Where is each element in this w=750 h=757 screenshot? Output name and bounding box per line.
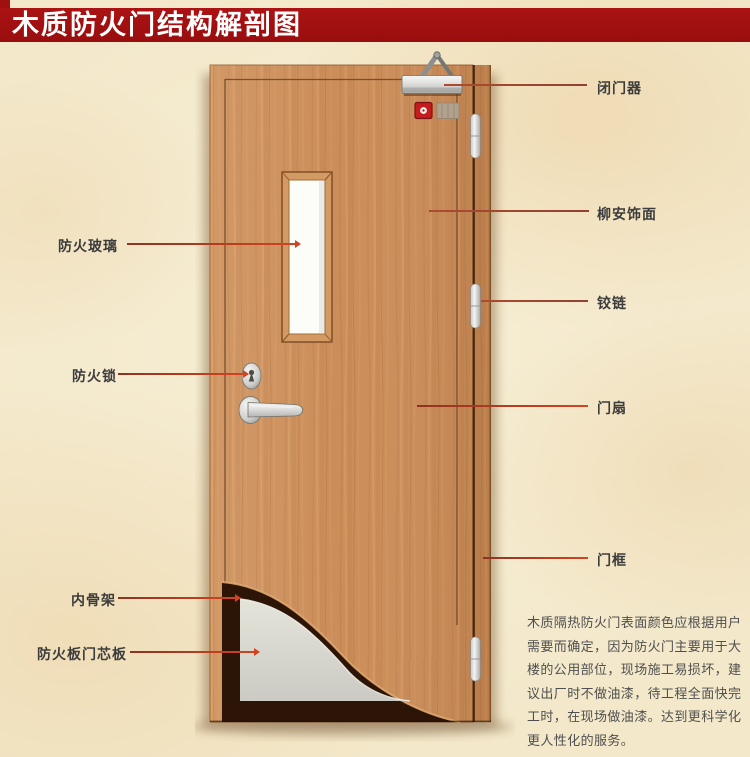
strike-plate (437, 103, 459, 119)
leader-fire-glass (127, 243, 296, 245)
door-gap (473, 65, 475, 722)
hinge-bottom (471, 637, 481, 681)
label-fire-board-core: 防火板门芯板 (37, 644, 127, 664)
door-frame-strip (474, 65, 492, 722)
description-line: 需要而确定，因为防火门主要用于大 (527, 636, 739, 660)
label-hinge: 铰链 (597, 293, 627, 313)
label-door-frame: 门框 (597, 550, 627, 570)
leader-hinge (481, 300, 588, 302)
label-door-closer: 闭门器 (597, 78, 642, 98)
description-panel: 木质隔热防火门表面颜色应根据用户 需要而确定，因为防火门主要用于大 楼的公用部位… (527, 612, 739, 753)
page: 木质防火门结构解剖图 (0, 0, 750, 757)
description-line: 木质隔热防火门表面颜色应根据用户 (527, 612, 739, 636)
hinge-top (471, 114, 481, 158)
leader-door-frame (483, 557, 588, 559)
description-line: 更人性化的服务。 (527, 730, 739, 754)
label-fire-glass: 防火玻璃 (58, 236, 118, 256)
label-lauan-veneer: 柳安饰面 (597, 204, 657, 224)
door-illustration (195, 45, 515, 745)
leader-inner-skeleton (118, 597, 236, 599)
alarm-indicator (415, 103, 432, 119)
page-title: 木质防火门结构解剖图 (0, 8, 750, 43)
title-banner: 木质防火门结构解剖图 (0, 8, 750, 42)
fire-glass-window (282, 172, 332, 342)
hinge-middle (471, 284, 481, 328)
leader-fire-board-core (130, 651, 255, 653)
description-line: 楼的公用部位，现场施工易损坏，建 (527, 659, 739, 683)
leader-door-leaf (417, 405, 588, 407)
label-inner-skeleton: 内骨架 (71, 590, 116, 610)
leader-door-closer (444, 84, 587, 86)
leader-fire-lock (118, 373, 244, 375)
label-fire-lock: 防火锁 (72, 366, 117, 386)
leader-lauan-veneer (429, 210, 589, 212)
label-door-leaf: 门扇 (597, 398, 627, 418)
description-line: 议出厂时不做油漆，待工程全面快完 (527, 683, 739, 707)
door-bottom-edge (210, 721, 491, 723)
description-line: 工时，在现场做油漆。达到更科学化 (527, 706, 739, 730)
